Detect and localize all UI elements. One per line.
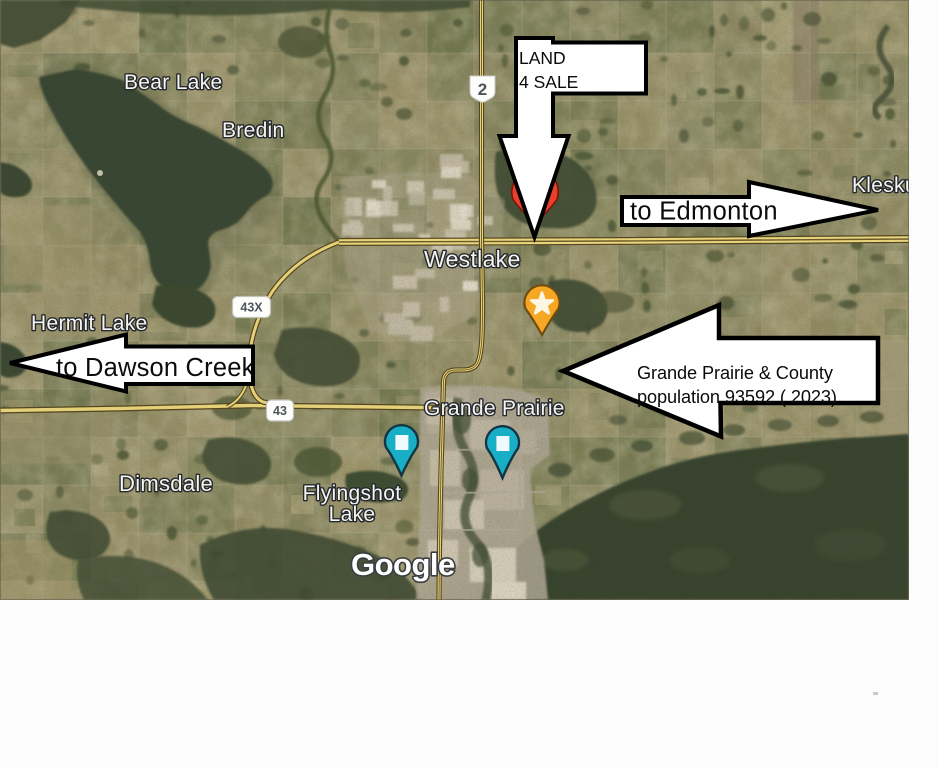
svg-text:Bredin: Bredin: [222, 119, 285, 142]
svg-text:to Edmonton: to Edmonton: [630, 198, 778, 226]
svg-text:43: 43: [273, 404, 287, 418]
svg-text:Hermit Lake: Hermit Lake: [31, 312, 148, 335]
svg-text:2: 2: [478, 80, 487, 99]
svg-text:Bear Lake: Bear Lake: [124, 71, 222, 94]
svg-text:Kleskun: Kleskun: [852, 174, 909, 197]
svg-text:LAND: LAND: [519, 48, 566, 68]
svg-text:Westlake: Westlake: [424, 246, 521, 272]
svg-text:4 SALE: 4 SALE: [519, 72, 578, 92]
svg-text:to Dawson Creek: to Dawson Creek: [56, 354, 255, 382]
svg-text:43X: 43X: [240, 301, 263, 315]
svg-text:Google: Google: [351, 547, 455, 582]
svg-text:Dimsdale: Dimsdale: [119, 471, 213, 496]
svg-text:Grande Prairie & County: Grande Prairie & County: [637, 363, 834, 383]
svg-text:population 93592 ( 2023): population 93592 ( 2023): [637, 387, 837, 407]
svg-text:Grande Prairie: Grande Prairie: [424, 397, 565, 420]
svg-text:Flyingshot: Flyingshot: [303, 482, 402, 505]
svg-text:Lake: Lake: [329, 503, 376, 526]
